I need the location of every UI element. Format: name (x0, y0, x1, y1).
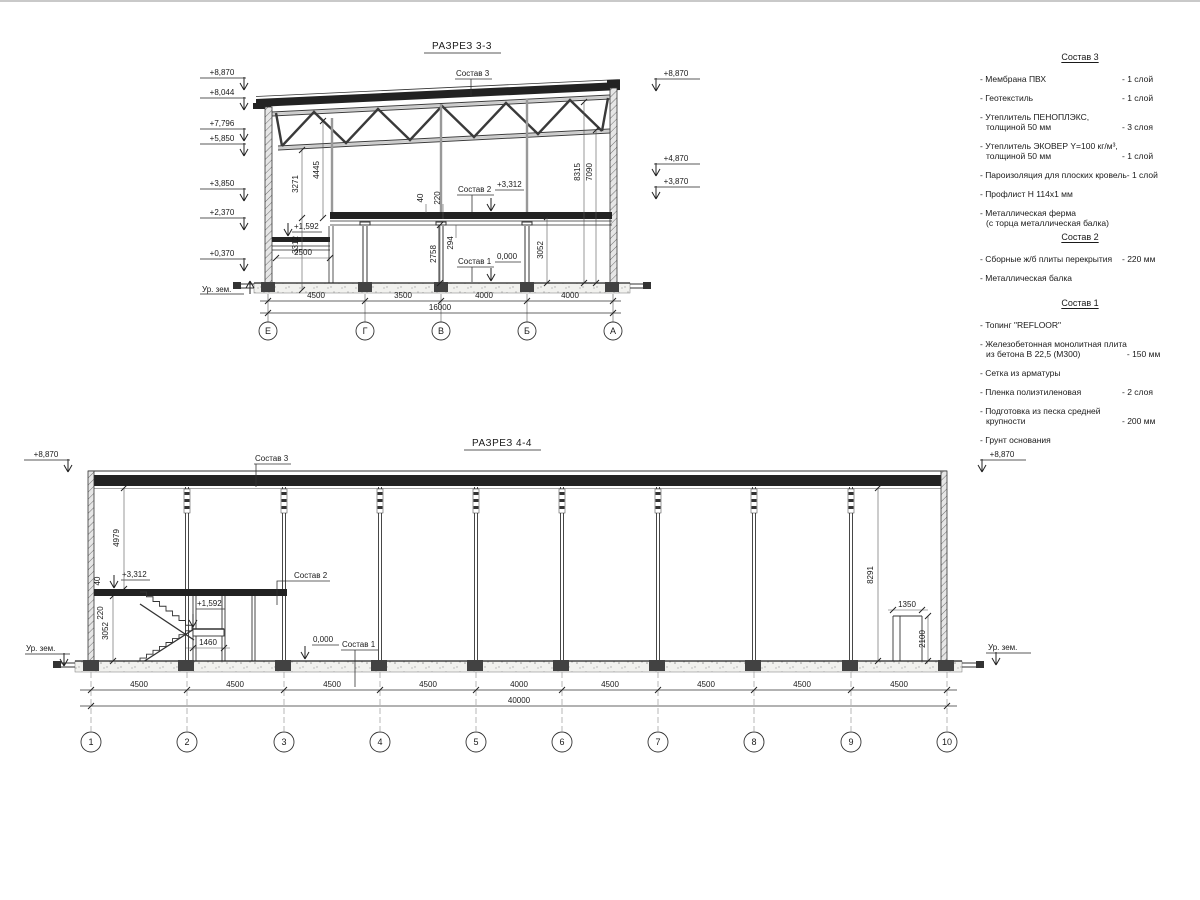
legend-item: - Металлическая балка (980, 273, 1180, 283)
legend-sostav-2: Состав 2 - Сборные ж/б плиты перекрытия-… (980, 232, 1180, 292)
axis-bubble-label: 1 (88, 737, 93, 747)
dim-label: 4000 (561, 291, 579, 300)
legend-item: - Сборные ж/б плиты перекрытия- 220 мм (980, 254, 1180, 264)
axis-bubble-label: Б (524, 326, 530, 336)
sostav1-label: Состав 1 (342, 640, 376, 649)
upper-columns-3-3 (332, 99, 527, 212)
dim-label: 1460 (199, 638, 217, 647)
dim-label: 7090 (585, 163, 594, 181)
elevation-label: +7,796 (210, 119, 235, 128)
callouts-4-4: Состав 3 Состав 2 +3,312 +1,592 0,000 Со… (110, 454, 378, 687)
dim-label: 4500 (323, 680, 341, 689)
axis-bubble-label: 5 (473, 737, 478, 747)
legend-item: - Пароизоляция для плоских кровель- 1 сл… (980, 170, 1180, 180)
legend-item: - Грунт основания (980, 435, 1180, 445)
axis-bubble-label: Г (363, 326, 368, 336)
ground-4-4 (53, 660, 984, 672)
drawing-sheet: { "s33": { "title": "РАЗРЕЗ 3-3", "elev_… (0, 0, 1200, 900)
dim-label: 3500 (394, 291, 412, 300)
dim-label: 220 (433, 191, 442, 205)
dim-label: 4500 (793, 680, 811, 689)
dim-label: 1350 (898, 600, 916, 609)
vertical-dims-4-4: 4979 40 220 3052 8291 2100 1460 1350 (93, 485, 931, 664)
dim-label: 4500 (890, 680, 908, 689)
dim-label: 2758 (429, 245, 438, 263)
columns-4-4 (184, 487, 854, 662)
section-3-3: РАЗРЕЗ 3-3 (200, 41, 700, 340)
dim-label: 4500 (601, 680, 619, 689)
section-3-3-title: РАЗРЕЗ 3-3 (432, 41, 492, 52)
axis-bubbles-4-4: 1 2 3 4 5 6 7 8 9 10 (81, 732, 957, 752)
dim-label: 220 (96, 606, 105, 620)
elevation-label: +8,870 (664, 69, 689, 78)
legend-item: - Профлист Н 114х1 мм (980, 189, 1180, 199)
axis-bubble-label: 10 (942, 737, 952, 747)
dim-total-label: 40000 (508, 696, 531, 705)
dim-label: 8291 (866, 566, 875, 584)
dim-label: 8315 (573, 163, 582, 181)
axis-bubble-label: Е (265, 326, 271, 336)
dim-label: 4500 (307, 291, 325, 300)
sostav3-label: Состав 3 (456, 69, 490, 78)
legend-sostav-3: Состав 3 - Мембрана ПВХ- 1 слой - Геотек… (980, 52, 1180, 237)
elevation-label: +8,870 (210, 68, 235, 77)
legend-item: - Подготовка из песка среднейкрупности- … (980, 406, 1180, 426)
axis-bubble-label: 9 (848, 737, 853, 747)
elevation-label: +2,370 (210, 208, 235, 217)
legend-heading: Состав 1 (980, 298, 1180, 308)
sostav2-label: Состав 2 (294, 571, 328, 580)
dim-label: 3052 (101, 622, 110, 640)
level-1592-label: +1,592 (197, 599, 222, 608)
sostav2-label: Состав 2 (458, 185, 492, 194)
axis-bubble-label: 4 (377, 737, 382, 747)
ground-level-label: Ур. зем. (988, 643, 1017, 652)
level-1592-label: +1,592 (294, 222, 319, 231)
dim-label: 3271 (291, 175, 300, 193)
legend-heading: Состав 2 (980, 232, 1180, 242)
legend-heading: Состав 3 (980, 52, 1180, 62)
level-0000-label: 0,000 (497, 252, 518, 261)
axis-bubbles-3-3: Е Г В Б А (259, 322, 622, 340)
dim-label: 2100 (918, 630, 927, 648)
vertical-dims-3-3: 3271 4445 3312 40 220 294 2758 3052 8315… (273, 99, 599, 293)
legend-item: - Геотекстиль- 1 слой (980, 93, 1180, 103)
legend-item: - Железобетонная монолитная плитаиз бето… (980, 339, 1180, 359)
axis-bubble-label: В (438, 326, 444, 336)
dim-label: 4445 (312, 161, 321, 179)
legend-item: - Пленка полиэтиленовая- 2 слоя (980, 387, 1180, 397)
elevation-label: +5,850 (210, 134, 235, 143)
dim-label: 3052 (536, 241, 545, 259)
dim-total-label: 16000 (429, 303, 452, 312)
ground-level-label: Ур. зем. (26, 644, 55, 653)
stair-stringer (143, 629, 194, 662)
dim-label: 40 (416, 193, 425, 202)
level-3312-label: +3,312 (497, 180, 522, 189)
sostav3-label: Состав 3 (255, 454, 289, 463)
dim-label: 4000 (510, 680, 528, 689)
elevation-label: +0,370 (210, 249, 235, 258)
dim-label: 294 (446, 236, 455, 250)
bottom-dims-3-3: 4500 3500 4000 4000 16000 Е Г В Б А (259, 291, 622, 340)
legend-item: - Топинг "REFLOOR" (980, 320, 1180, 330)
ground-3-3 (233, 282, 651, 293)
axis-bubble-label: 6 (559, 737, 564, 747)
roof-4-4 (88, 471, 947, 489)
dim-label: 40 (93, 576, 102, 585)
axis-bubble-label: 2 (184, 737, 189, 747)
axis-bubble-label: А (610, 326, 616, 336)
elevation-label: +8,044 (210, 88, 235, 97)
axis-bubble-label: 3 (281, 737, 286, 747)
elevation-marks-right-3-3: +8,870 +4,870 +3,870 (652, 69, 700, 199)
bottom-dims-4-4: 4500 4500 4500 4500 4000 4500 4500 4500 … (80, 672, 957, 752)
stair-landing (193, 629, 224, 636)
legend-item: - Мембрана ПВХ- 1 слой (980, 74, 1180, 84)
legend-item: - Сетка из арматуры (980, 368, 1180, 378)
legend-sostav-1: Состав 1 - Топинг "REFLOOR" - Железобето… (980, 298, 1180, 454)
level-0000-label: 0,000 (313, 635, 334, 644)
legend-item: - Металлическая ферма(с торца металличес… (980, 208, 1180, 228)
sostav1-label: Состав 1 (458, 257, 492, 266)
legend-item: - Утеплитель ПЕНОПЛЭКС,толщиной 50 мм- 3… (980, 112, 1180, 132)
stair-upper-flight (140, 592, 192, 630)
elevation-label: +4,870 (664, 154, 689, 163)
dim-label: 4000 (475, 291, 493, 300)
dim-label: 4500 (697, 680, 715, 689)
axis-bubble-label: 7 (655, 737, 660, 747)
dim-label: 4500 (226, 680, 244, 689)
section-4-4-title: РАЗРЕЗ 4-4 (472, 438, 532, 449)
axis-bubble-label: 8 (751, 737, 756, 747)
elevation-label: +3,850 (210, 179, 235, 188)
legend-item: - Утеплитель ЭКОВЕР Y=100 кг/м³,толщиной… (980, 141, 1180, 161)
dim-label: 2500 (294, 248, 312, 257)
ground-level-label: Ур. зем. (202, 285, 231, 294)
elevation-marks-left-3-3: +8,870 +8,044 +7,796 +5,850 +3,850 +2,37… (200, 68, 254, 294)
level-3312-label: +3,312 (122, 570, 147, 579)
elevation-label: +8,870 (34, 450, 59, 459)
elevation-label: +3,870 (664, 177, 689, 186)
dim-label: 4979 (112, 529, 121, 547)
dim-label: 4500 (130, 680, 148, 689)
section-4-4: РАЗРЕЗ 4-4 (24, 438, 1031, 752)
dim-label: 4500 (419, 680, 437, 689)
